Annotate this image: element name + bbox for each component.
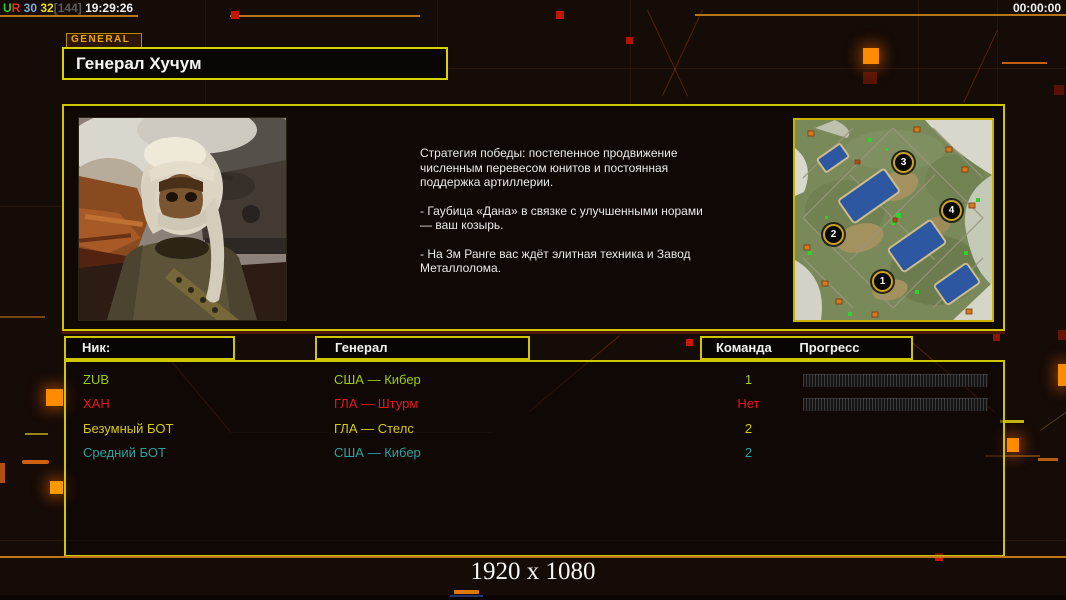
player-nick: ХАН <box>83 392 110 416</box>
clock-readout: 19:29:26 <box>82 1 133 15</box>
strategy-briefing: Стратегия победы: постепенное продвижени… <box>420 146 708 290</box>
minimap-terrain <box>795 120 992 320</box>
column-header-general: Генерал <box>315 336 530 360</box>
portrait-art <box>79 118 286 320</box>
player-nick: Средний БОТ <box>83 441 166 465</box>
stat-units: 30 <box>20 1 37 15</box>
player-general: ГЛА — Стелс <box>334 417 414 441</box>
briefing-panel: Стратегия победы: постепенное продвижени… <box>62 104 1005 331</box>
player-general: США — Кибер <box>334 368 421 392</box>
player-general: США — Кибер <box>334 441 421 465</box>
minimap: 1 2 3 4 <box>793 118 994 322</box>
footer-dash <box>454 590 479 594</box>
start-position-marker-4: 4 <box>941 200 962 221</box>
player-row: Средний БОТ США — Кибер 2 <box>66 441 1003 465</box>
player-row: Безумный БОТ ГЛА — Стелс 2 <box>66 417 1003 441</box>
player-team: 2 <box>706 441 791 465</box>
briefing-paragraph: Стратегия победы: постепенное продвижени… <box>420 146 708 190</box>
player-row: ZUB США — Кибер 1 <box>66 368 1003 392</box>
column-header-progress: Прогресс <box>799 340 859 355</box>
footer-dash-underline <box>450 595 483 597</box>
general-name-box: Генерал Хучум <box>62 47 448 80</box>
match-timer: 00:00:00 <box>1013 1 1061 15</box>
player-stats-readout: UR 30 32[144] 19:29:26 <box>3 1 133 15</box>
player-team: 1 <box>706 368 791 392</box>
player-general: ГЛА — Штурм <box>334 392 418 416</box>
player-nick: ZUB <box>83 368 109 392</box>
game-loading-screen: UR 30 32[144] 19:29:26 00:00:00 GENERAL … <box>0 0 1066 600</box>
loading-progress-bar <box>803 398 988 411</box>
start-position-marker-3: 3 <box>893 152 914 173</box>
player-nick: Безумный БОТ <box>83 417 173 441</box>
resolution-label: 1920 x 1080 <box>0 558 1066 586</box>
column-header-nick: Ник: <box>64 336 235 360</box>
player-row: ХАН ГЛА — Штурм Нет <box>66 392 1003 416</box>
column-header-team: Команда <box>716 340 772 355</box>
column-header-team-progress: Команда Прогресс <box>700 336 913 360</box>
bottom-edge-bar <box>0 595 1066 600</box>
stat-rank: 32 <box>37 1 54 15</box>
players-table: ZUB США — Кибер 1 ХАН ГЛА — Штурм Нет Бе… <box>64 360 1005 557</box>
general-name: Генерал Хучум <box>76 54 202 73</box>
stat-limit: [144] <box>54 1 82 15</box>
loading-progress-bar <box>803 374 988 387</box>
briefing-paragraph: - Гаубица «Дана» в связке с улучшенными … <box>420 204 708 233</box>
briefing-paragraph: - На 3м Ранге вас ждёт элитная техника и… <box>420 247 708 276</box>
stat-u: U <box>3 1 12 15</box>
start-position-marker-1: 1 <box>872 271 893 292</box>
general-portrait <box>78 117 287 321</box>
start-position-marker-2: 2 <box>823 224 844 245</box>
player-team: 2 <box>706 417 791 441</box>
player-team: Нет <box>706 392 791 416</box>
